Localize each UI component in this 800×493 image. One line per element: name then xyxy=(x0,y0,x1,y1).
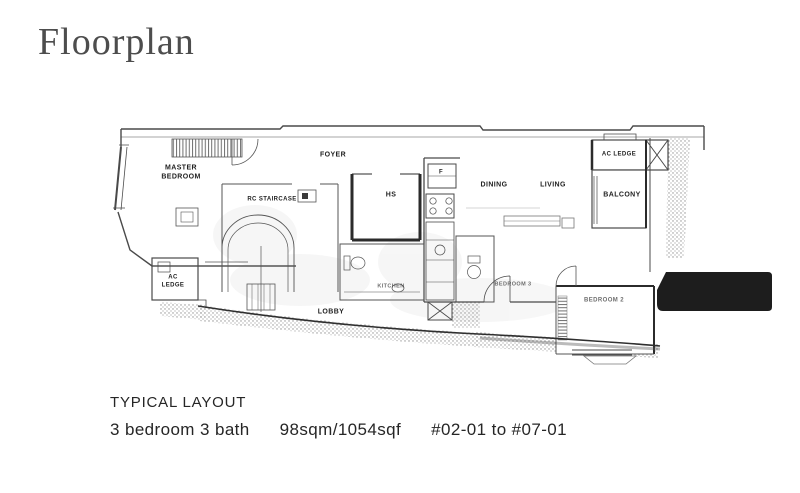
bedroom2-label: BEDROOM 2 xyxy=(584,297,624,305)
layout-type-label: TYPICAL LAYOUT xyxy=(110,394,567,411)
wardrobe xyxy=(172,139,242,157)
rc-staircase-label: RC STAIRCASE xyxy=(247,196,296,204)
kitchen-label: KITCHEN xyxy=(377,284,404,291)
unit-area-text: 98sqm/1054sqf xyxy=(280,420,401,439)
unit-details: 3 bedroom 3 bath98sqm/1054sqf#02-01 to #… xyxy=(110,420,567,440)
living-furniture xyxy=(466,208,574,228)
fridge-label: F xyxy=(439,169,443,177)
toilet-2 xyxy=(468,266,481,279)
footer: TYPICAL LAYOUT 3 bedroom 3 bath98sqm/105… xyxy=(110,394,567,440)
bedroom2-door-arc xyxy=(556,266,576,286)
bedroom3-label: BEDROOM 3 xyxy=(495,282,532,289)
ac-ledge-right-label: AC LEDGE xyxy=(602,151,636,159)
hs-walls xyxy=(352,174,420,240)
living-label: LIVING xyxy=(540,182,566,191)
unit-type-text: 3 bedroom 3 bath xyxy=(110,420,250,439)
unit-range-text: #02-01 to #07-01 xyxy=(431,420,567,439)
dining-label: DINING xyxy=(481,182,508,191)
scan-blur xyxy=(213,205,570,322)
hs-label: HS xyxy=(386,192,397,201)
lobby-label: LOBBY xyxy=(318,309,345,318)
desk xyxy=(176,208,198,226)
ac-ledge-left-label: AC LEDGE xyxy=(162,275,185,290)
master-bedroom-label: MASTER BEDROOM xyxy=(161,164,200,182)
foyer-label: FOYER xyxy=(320,152,346,161)
balcony-label: BALCONY xyxy=(603,192,640,201)
black-wall-bar xyxy=(657,272,772,311)
